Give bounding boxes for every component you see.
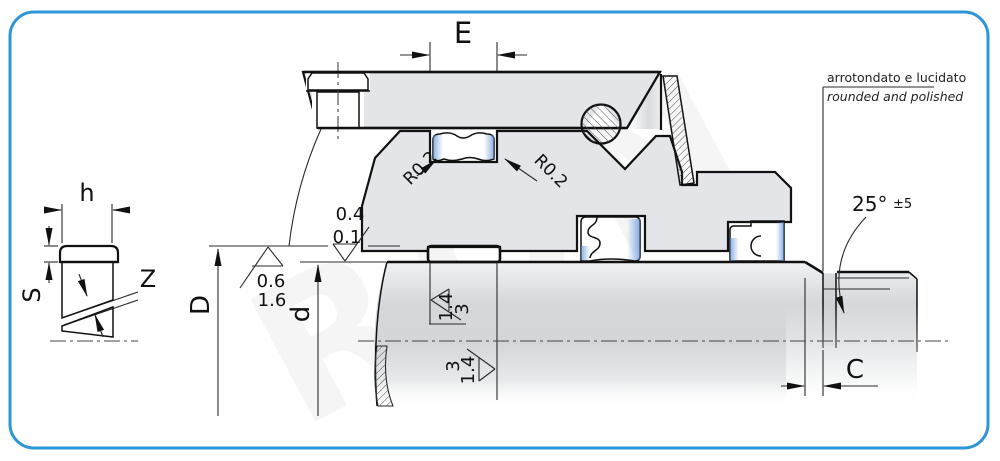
finish-groove-top-b: 0.1 bbox=[333, 227, 362, 248]
dim-h-label: h bbox=[79, 179, 94, 207]
technical-drawing: RON h S Z bbox=[0, 0, 1000, 461]
finish-shaft-bottom-b: 1.4 bbox=[458, 356, 479, 385]
angle-tolerance: ±5 bbox=[893, 197, 912, 212]
note-italian: arrotondato e lucidato bbox=[827, 70, 966, 85]
rod-seal-blue-right bbox=[627, 219, 640, 260]
dim-D-label: D bbox=[186, 295, 216, 315]
finish-shaft-top-b: 3 bbox=[452, 303, 473, 314]
note-english: rounded and polished bbox=[827, 89, 963, 104]
dim-z-label: Z bbox=[140, 265, 156, 293]
o-ring-hatch bbox=[582, 105, 621, 144]
angle-value: 25° bbox=[852, 192, 887, 216]
dim-d-label: d bbox=[286, 306, 316, 323]
finish-groove-top-a: 0.4 bbox=[336, 204, 365, 225]
dim-E-label: E bbox=[454, 16, 472, 50]
wiper-seal-blue-left bbox=[730, 238, 739, 261]
dim-C-label: C bbox=[846, 355, 864, 385]
dim-s-label: S bbox=[18, 287, 46, 302]
finish-groove-bottom-b: 1.6 bbox=[258, 290, 287, 311]
rod-seal-blue-left bbox=[581, 246, 590, 260]
wiper-seal-blue-right bbox=[776, 222, 784, 261]
finish-groove-bottom-a: 0.6 bbox=[257, 271, 286, 292]
rod-shaft bbox=[374, 262, 951, 417]
o-ring bbox=[582, 105, 621, 144]
bottom-right-fade bbox=[786, 305, 951, 417]
hes-seal-blue-right bbox=[484, 135, 494, 159]
